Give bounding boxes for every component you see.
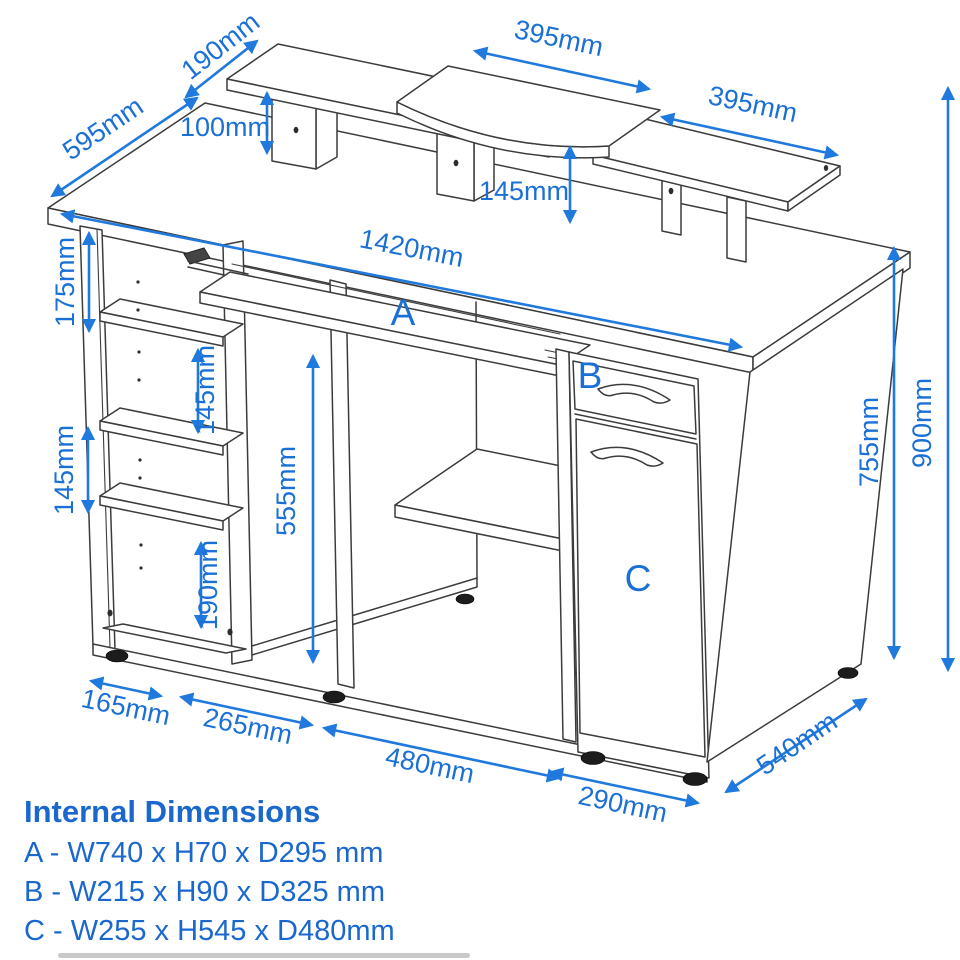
dim-label-center-bay-width: 265mm (201, 702, 295, 750)
pedestal-foot (838, 668, 858, 679)
dim-label-riser-right-height: 145mm (479, 176, 569, 206)
legend-title: Internal Dimensions (24, 794, 320, 829)
part-label-a: A (391, 292, 416, 333)
dim-label-riser-right-width: 395mm (706, 80, 800, 128)
back-rail (232, 578, 477, 661)
left-unit-shelf (100, 408, 243, 455)
dim-label-shelf-gap-top: 175mm (50, 237, 80, 327)
desk-drawing (48, 44, 910, 786)
dim-label-riser-center-width: 395mm (512, 14, 606, 62)
legend-line-c: C - W255 x H545 x D480mm (24, 915, 395, 947)
legend-line-b: B - W215 x H90 x D325 mm (24, 876, 385, 908)
pedestal-foot (683, 773, 707, 786)
legend-line-a: A - W740 x H70 x D295 mm (24, 837, 383, 869)
dim-label-shelf-gap-mid: 145mm (190, 345, 220, 435)
dim-label-compartment-height: 555mm (271, 446, 301, 536)
dim-label-kneehole-width: 480mm (383, 741, 477, 789)
part-label-c: C (625, 558, 652, 599)
diagram-canvas: 190mm 595mm 100mm 395mm 395mm 145mm 1420… (0, 0, 960, 960)
dim-label-base-shelf-height: 190mm (193, 540, 223, 630)
part-label-b: B (578, 355, 603, 396)
desk-dimension-diagram: 190mm 595mm 100mm 395mm 395mm 145mm 1420… (0, 0, 960, 960)
legend: Internal Dimensions A - W740 x H70 x D29… (24, 794, 395, 947)
dim-label-overall-height: 900mm (907, 378, 937, 468)
pedestal-foot (581, 752, 605, 765)
left-unit-shelf (100, 483, 243, 530)
back-foot (456, 594, 474, 604)
dim-label-riser-left-height: 100mm (180, 112, 270, 142)
center-foot (323, 691, 345, 703)
dim-label-underside-height: 755mm (854, 397, 884, 487)
dim-label-left-unit-width: 165mm (79, 683, 173, 731)
bottom-divider-bar (58, 953, 470, 958)
left-foot (106, 650, 128, 662)
dim-label-shelf-gap-left: 145mm (49, 425, 79, 515)
